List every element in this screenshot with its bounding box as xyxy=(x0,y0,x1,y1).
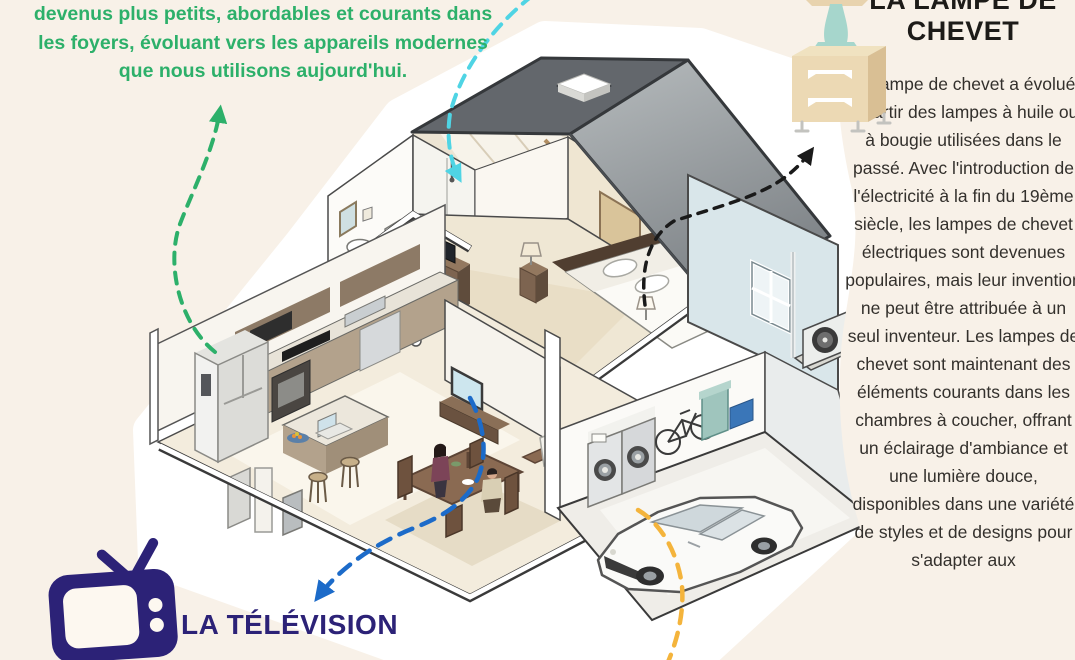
nightstand-front xyxy=(792,56,868,122)
nightstand-lamp-icon xyxy=(772,0,902,134)
electrical-panel xyxy=(228,468,250,528)
intro-line: devenus plus petits, abordables et coura… xyxy=(8,0,518,29)
intro-line: que nous utilisons aujourd'hui. xyxy=(8,57,518,86)
intro-text: devenus plus petits, abordables et coura… xyxy=(8,0,518,86)
lamp-base xyxy=(824,4,848,42)
fridge-dispenser xyxy=(201,374,211,396)
refrigerator xyxy=(195,330,268,462)
tv-screen xyxy=(62,584,140,649)
intro-line: les foyers, évoluant vers les appareils … xyxy=(8,29,518,58)
bathroom-art xyxy=(363,207,372,221)
nightstand-side xyxy=(868,46,886,122)
television-icon xyxy=(36,524,188,660)
infographic-page: devenus plus petits, abordables et coura… xyxy=(0,0,1075,660)
green-dashed-arrow xyxy=(174,110,220,352)
bedside-lamp xyxy=(521,243,541,256)
tv-section-label: LA TÉLÉVISION xyxy=(181,609,398,641)
lamp-section-body: La lampe de chevet a évolué à partir des… xyxy=(845,70,1075,574)
